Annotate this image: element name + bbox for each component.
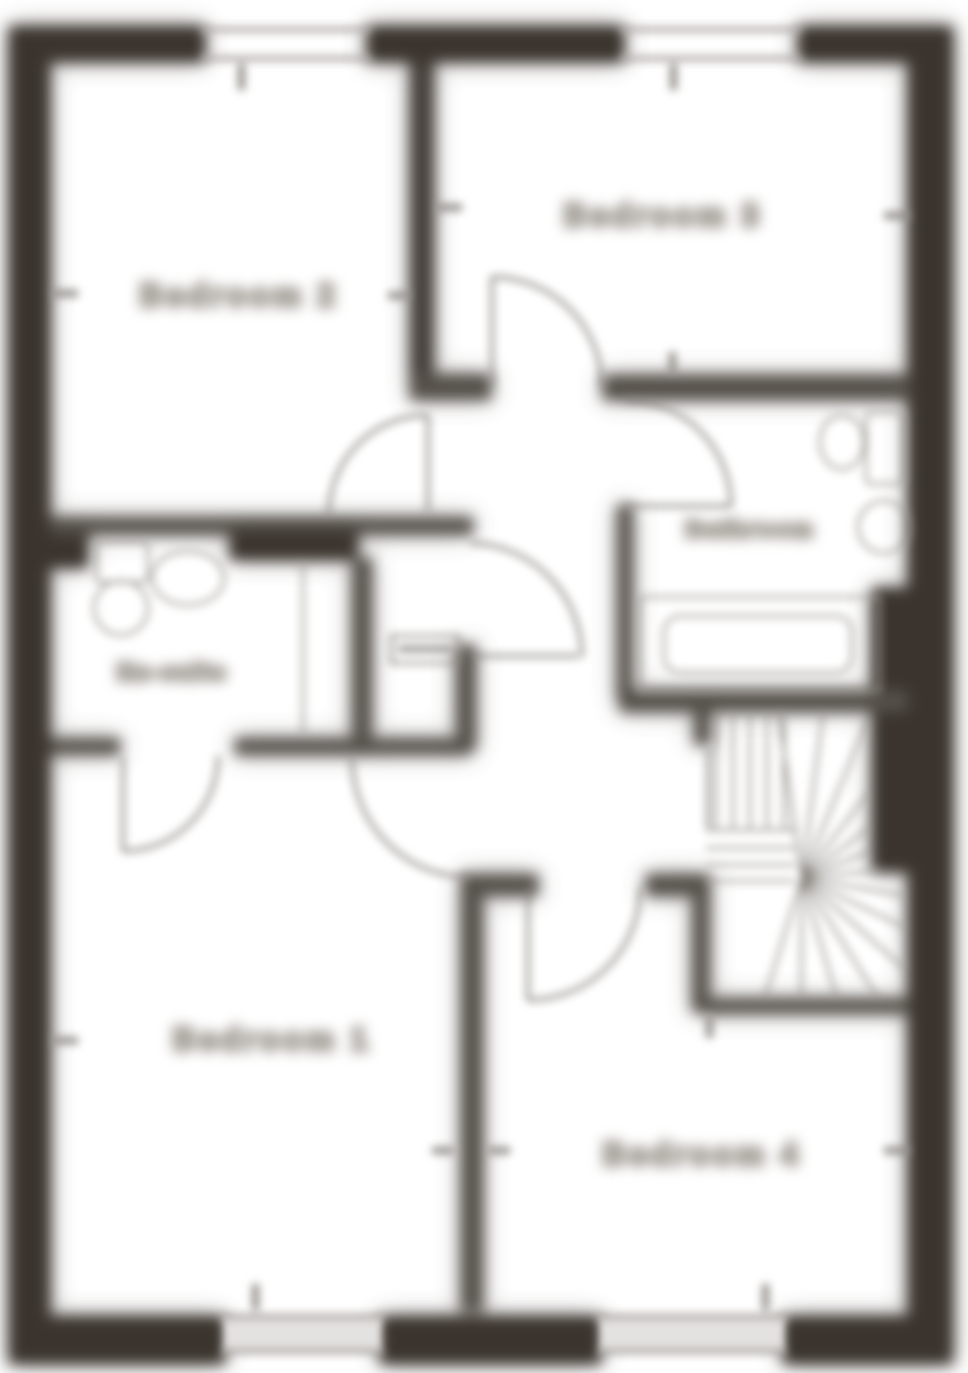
svg-text:Bedroom 4: Bedroom 4: [603, 1136, 802, 1172]
svg-text:Bedroom 3: Bedroom 3: [564, 197, 763, 233]
svg-text:Bathroom: Bathroom: [685, 516, 814, 543]
svg-text:En-suite: En-suite: [117, 659, 228, 686]
svg-text:Bedroom 2: Bedroom 2: [140, 277, 339, 313]
svg-text:Bedroom 1: Bedroom 1: [173, 1021, 372, 1057]
